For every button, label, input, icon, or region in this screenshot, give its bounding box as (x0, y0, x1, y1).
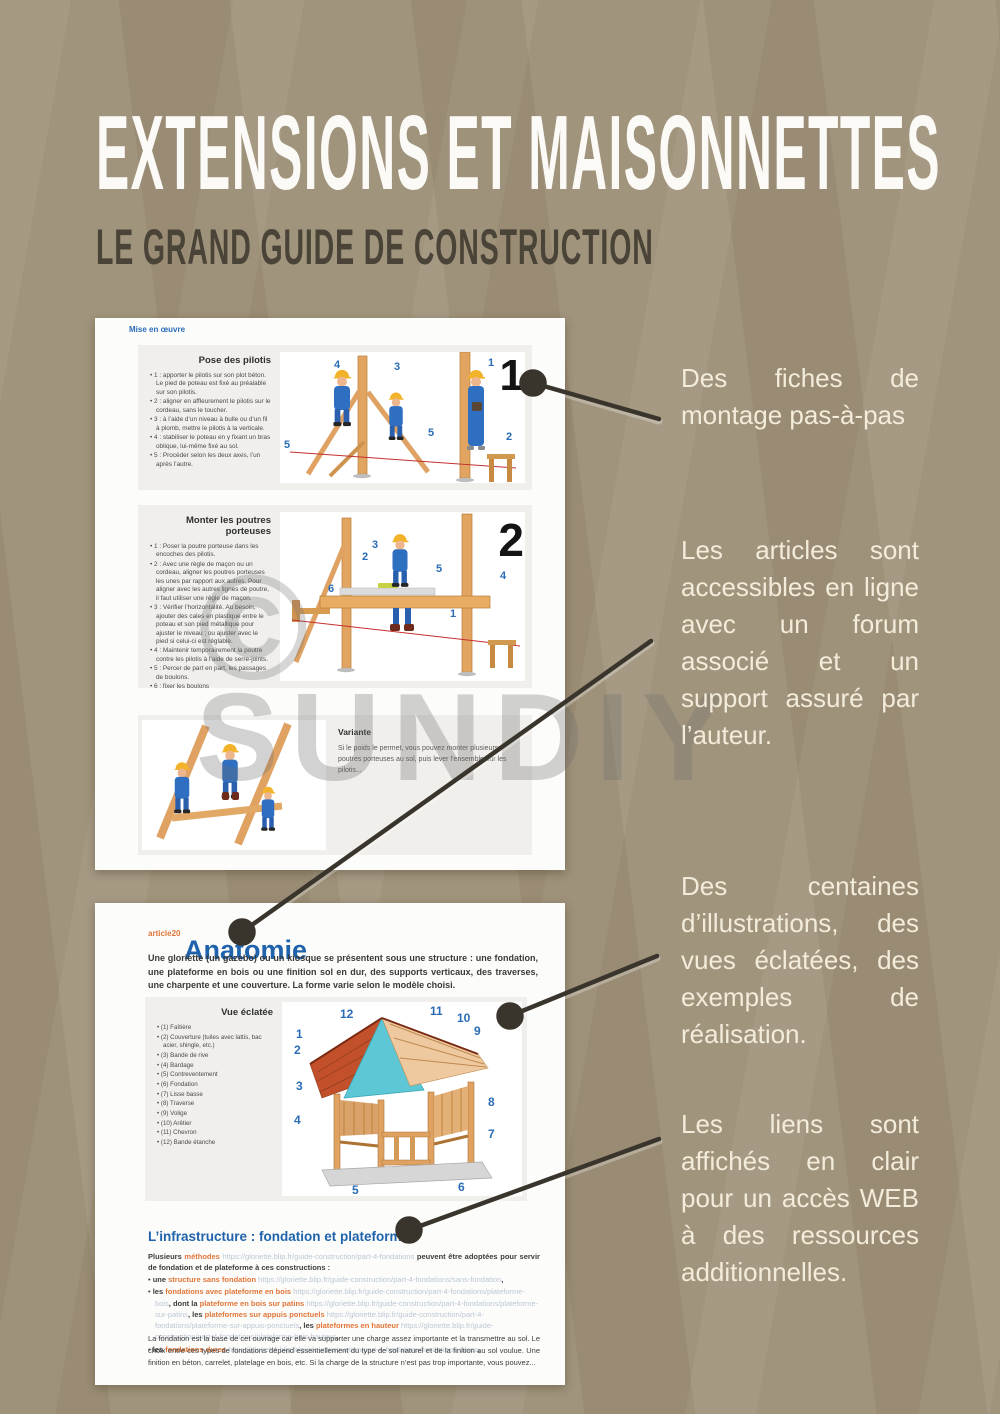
section-title: Pose des pilotis (150, 355, 271, 366)
exploded-item: (4) Bardage (157, 1062, 273, 1071)
article-tag[interactable]: article20 (148, 929, 180, 938)
link-plateformes-appuis-ponctuels[interactable]: plateformes sur appuis ponctuels (205, 1310, 327, 1319)
illustration-poutres-porteuses: 3 2 6 5 4 1 2 (280, 512, 525, 681)
wood-structure (292, 514, 490, 676)
sawhorse (487, 454, 515, 482)
text-run: une (153, 1275, 168, 1284)
screenshot-panel-anatomie: article20 Anatomie Une gloriette (un gaz… (95, 903, 565, 1385)
exploded-item: (6) Fondation (157, 1081, 273, 1090)
exploded-item: (7) Lisse basse (157, 1091, 273, 1100)
page-subtitle: LE GRAND GUIDE DE CONSTRUCTION (96, 222, 654, 272)
section-text-column: Vue éclatée (1) Faîtière (2) Couverture … (145, 997, 282, 1201)
illustration-pose-pilotis: 4 3 1 5 5 2 1 (280, 352, 525, 483)
step-item: 5 : Procéder selon les deux axes, l’un a… (150, 452, 271, 469)
figure-label: 2 (362, 551, 368, 563)
gazebo-label: 5 (352, 1183, 359, 1196)
figure-label: 1 (450, 608, 456, 620)
article-intro: Une gloriette (un gazebo) ou un kiosque … (148, 952, 538, 993)
figure-number-2: 2 (498, 514, 524, 566)
red-cordeau (290, 452, 516, 468)
text-run: Plusieurs (148, 1252, 184, 1261)
section-vue-eclatee: Vue éclatée (1) Faîtière (2) Couverture … (145, 997, 527, 1201)
variante-title: Variante (338, 727, 520, 737)
callout-illustrations: Des centaines d’illustrations, des vues … (681, 868, 919, 1053)
step-item: 2 : Avec une règle de maçon ou un cordea… (150, 561, 271, 603)
exploded-item: (10) Arêtier (157, 1120, 273, 1129)
gazebo-label: 7 (488, 1127, 495, 1141)
link-url[interactable]: https://gloriette.blip.fr/guide-construc… (258, 1275, 501, 1284)
gazebo-label: 4 (294, 1113, 301, 1127)
link-url[interactable]: https://gloriette.blip.fr/guide-construc… (222, 1252, 414, 1261)
gazebo-label: 2 (294, 1043, 301, 1057)
gazebo-roof (310, 1018, 488, 1098)
gazebo-label: 9 (474, 1024, 481, 1038)
figure-label: 1 (488, 357, 494, 369)
text-run: dont la (173, 1299, 200, 1308)
link-fondations-plateforme-bois[interactable]: fondations avec plateforme en bois (165, 1287, 293, 1296)
exploded-item: (11) Chevron (157, 1129, 273, 1138)
worker-figure (221, 744, 239, 800)
section-title: Vue éclatée (157, 1007, 273, 1018)
gazebo-label: 8 (488, 1095, 495, 1109)
variante-paragraph: Si le poids le permet, vous pouvez monte… (338, 743, 520, 777)
infrastructure-intro: Plusieurs méthodes https://gloriette.bli… (148, 1251, 540, 1274)
step-item: 6 : fixer les boulons (150, 683, 271, 691)
gazebo-label: 12 (340, 1007, 354, 1021)
illustration-gazebo: 12 11 10 9 1 2 3 4 8 7 5 6 (282, 1002, 522, 1196)
page-title: EXTENSIONS ET MAISONNETTES (96, 100, 941, 206)
gazebo-label: 1 (296, 1027, 303, 1041)
link-bullet: une structure sans fondation https://glo… (148, 1274, 540, 1285)
link-plateformes-en-hauteur[interactable]: plateformes en hauteur (316, 1321, 401, 1330)
worker-figure (261, 787, 275, 831)
figure-label: 4 (334, 359, 341, 371)
link-structure-sans-fondation[interactable]: structure sans fondation (168, 1275, 258, 1284)
section-title: Monter les poutres porteuses (150, 515, 271, 537)
exploded-item: (3) Bande de rive (157, 1052, 273, 1061)
gazebo-label: 11 (430, 1004, 443, 1018)
step-item: 4 : Maintenir temporairement la poutre c… (150, 647, 271, 664)
step-item: 3 : Vérifier l’horizontalité. Au besoin,… (150, 604, 271, 646)
poster-page: EXTENSIONS ET MAISONNETTES LE GRAND GUID… (0, 0, 1000, 1414)
section-variante: Variante Si le poids le permet, vous pou… (138, 715, 532, 855)
figure-label: 3 (372, 539, 378, 551)
link-plateforme-sur-patins[interactable]: plateforme en bois sur patins (200, 1299, 307, 1308)
exploded-item: (2) Couverture (tuiles avec lattis, bac … (157, 1034, 273, 1051)
figure-number-1: 1 (500, 352, 524, 400)
step-item: 2 : aligner en affleurement le pilotis s… (150, 398, 271, 415)
link-methodes[interactable]: méthodes (184, 1252, 222, 1261)
step-item: 4 : stabiliser le poteau en y fixant un … (150, 434, 271, 451)
callout-articles-en-ligne: Les articles sont accessibles en ligne a… (681, 532, 919, 753)
step-item: 3 : à l’aide d’un niveau à bulle ou d’un… (150, 416, 271, 433)
figure-label: 5 (428, 427, 434, 439)
breadcrumb-mise-en-oeuvre[interactable]: Mise en œuvre (129, 325, 185, 334)
step-list: 1 : apporter le pilotis sur son plot bét… (150, 372, 271, 469)
figure-label: 5 (284, 439, 290, 451)
figure-label: 2 (506, 431, 512, 443)
exploded-item: (8) Traverse (157, 1100, 273, 1109)
step-list: 1 : Poser la poutre porteuse dans les en… (150, 543, 271, 692)
text-run: les (153, 1287, 166, 1296)
callout-fiches-montage: Des fiches de montage pas-à-pas (681, 360, 919, 434)
step-item: 1 : apporter le pilotis sur son plot bét… (150, 372, 271, 397)
text-run: , (501, 1275, 503, 1284)
figure-label: 4 (500, 570, 507, 582)
step-item: 5 : Percer de part en part, les passages… (150, 665, 271, 682)
section-monter-poutres: Monter les poutres porteuses 1 : Poser l… (138, 505, 532, 688)
infrastructure-title: L’infrastructure : fondation et platefor… (148, 1229, 409, 1244)
figure-label: 3 (394, 361, 400, 373)
exploded-item: (9) Volige (157, 1110, 273, 1119)
sawhorse (488, 640, 516, 668)
gazebo-label: 10 (457, 1011, 471, 1025)
callout-liens-web: Les liens sont affichés en clair pour un… (681, 1106, 919, 1291)
section-text-column: Monter les poutres porteuses 1 : Poser l… (138, 505, 280, 688)
screenshot-panel-montage: Mise en œuvre Pose des pilotis 1 : appor… (95, 318, 565, 870)
figure-label: 6 (328, 583, 334, 595)
gazebo-label: 6 (458, 1180, 465, 1194)
text-run: les (303, 1321, 316, 1330)
step-item: 1 : Poser la poutre porteuse dans les en… (150, 543, 271, 560)
exploded-item: (5) Contreventement (157, 1071, 273, 1080)
section-text-column: Pose des pilotis 1 : apporter le pilotis… (138, 345, 280, 490)
exploded-item: (1) Faîtière (157, 1024, 273, 1033)
worker-figure (174, 762, 190, 813)
exploded-item: (12) Bande étanche (157, 1139, 273, 1148)
figure-label: 5 (436, 563, 442, 575)
variante-text: Variante Si le poids le permet, vous pou… (338, 727, 520, 777)
section-pose-des-pilotis: Pose des pilotis 1 : apporter le pilotis… (138, 345, 532, 490)
infrastructure-outro: La fondation est la base de cet ouvrage … (148, 1333, 540, 1369)
worker-figure (390, 534, 414, 631)
exploded-list: (1) Faîtière (2) Couverture (tuiles avec… (157, 1024, 273, 1148)
text-run: les (192, 1310, 205, 1319)
gazebo-label: 3 (296, 1079, 303, 1093)
illustration-variante (142, 720, 326, 850)
